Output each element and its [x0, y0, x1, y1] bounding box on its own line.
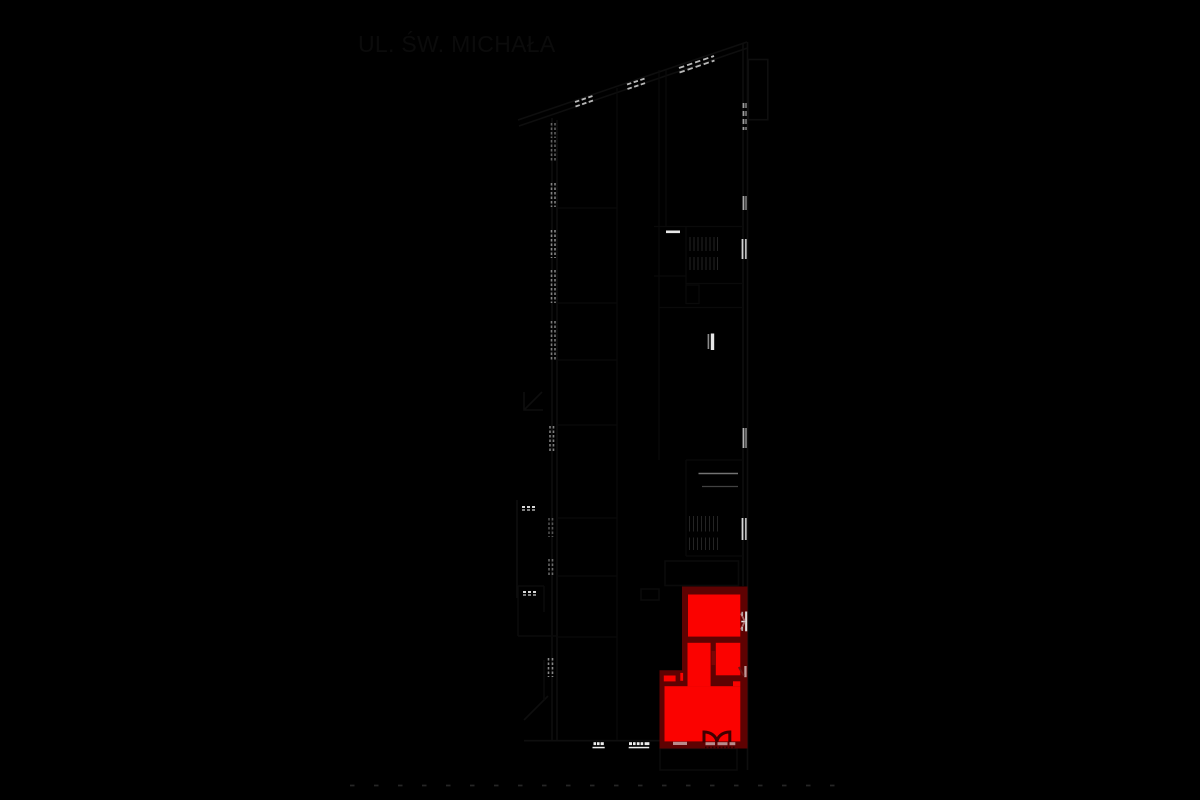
svg-text:UL. ŚW. MICHAŁA: UL. ŚW. MICHAŁA	[358, 30, 556, 57]
